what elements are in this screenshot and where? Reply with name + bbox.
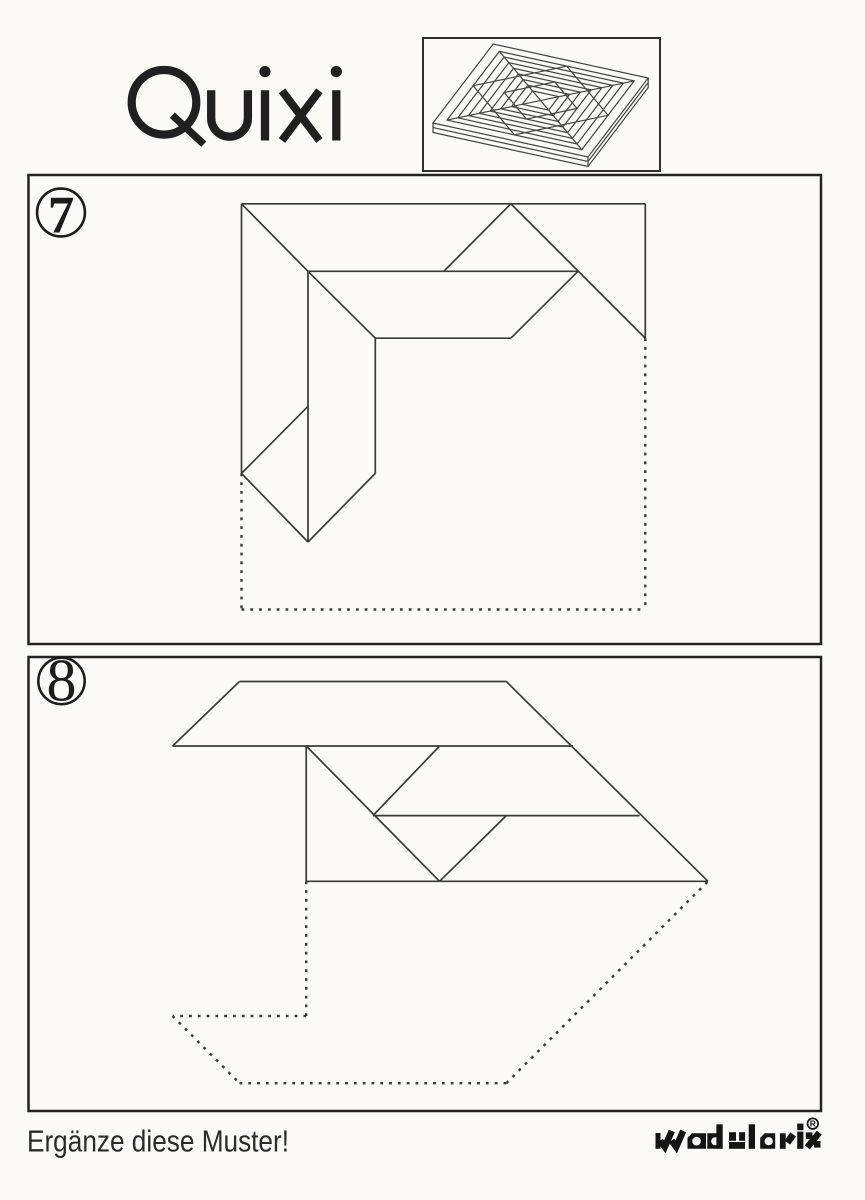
svg-text:Ergänze diese Muster!: Ergänze diese Muster! <box>27 1125 289 1159</box>
svg-text:7: 7 <box>48 187 75 245</box>
svg-text:R: R <box>810 1119 816 1129</box>
svg-text:8: 8 <box>47 648 77 714</box>
